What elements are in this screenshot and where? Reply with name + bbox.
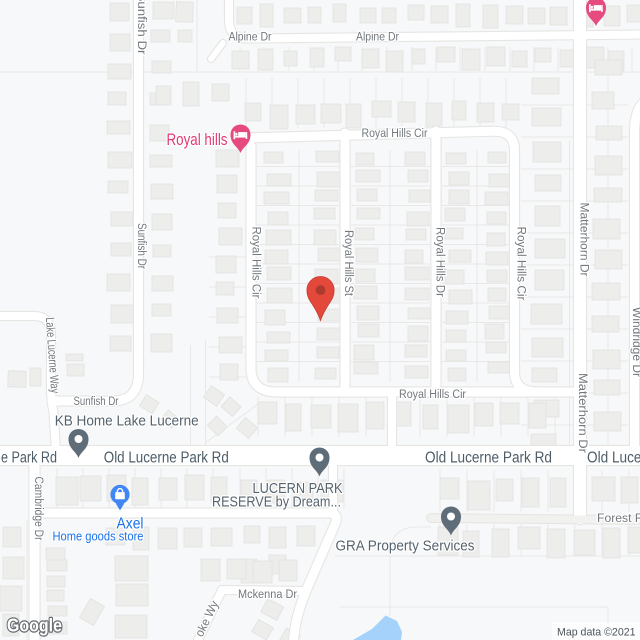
svg-text:Royal Hills St: Royal Hills St bbox=[342, 230, 356, 297]
svg-text:Royal Hills Dr: Royal Hills Dr bbox=[433, 227, 447, 297]
svg-text:Alpine Dr: Alpine Dr bbox=[356, 30, 399, 44]
svg-text:KB Home Lake Lucerne: KB Home Lake Lucerne bbox=[55, 413, 199, 430]
svg-text:Windridge Dr: Windridge Dr bbox=[630, 307, 640, 377]
svg-text:Royal Hills Cir: Royal Hills Cir bbox=[249, 227, 263, 299]
svg-text:Cambridge Dr: Cambridge Dr bbox=[32, 477, 46, 541]
svg-text:Old Lucerne Park Rd: Old Lucerne Park Rd bbox=[425, 450, 552, 467]
svg-text:Royal Hills Cir: Royal Hills Cir bbox=[362, 126, 428, 140]
svg-text:Mckenna Dr: Mckenna Dr bbox=[238, 587, 297, 601]
svg-text:Sunfish Dr: Sunfish Dr bbox=[135, 0, 149, 55]
svg-text:Royal Hills Cir: Royal Hills Cir bbox=[515, 227, 529, 301]
svg-text:Royal hills: Royal hills bbox=[167, 131, 228, 149]
svg-text:Royal Hills Cir: Royal Hills Cir bbox=[399, 387, 466, 401]
svg-text:Matterhorn Dr: Matterhorn Dr bbox=[576, 373, 590, 453]
svg-text:Old Lucerne Park Rd: Old Lucerne Park Rd bbox=[104, 450, 229, 467]
svg-text:Forest Ridge Dr: Forest Ridge Dr bbox=[597, 511, 640, 525]
svg-text:RESERVE by Dream...: RESERVE by Dream... bbox=[212, 494, 341, 511]
svg-text:Sunfish Dr: Sunfish Dr bbox=[74, 394, 119, 408]
svg-text:Home goods store: Home goods store bbox=[53, 528, 144, 543]
svg-text:Old Lucerne Park Rd: Old Lucerne Park Rd bbox=[587, 450, 640, 467]
svg-text:Map data ©2021: Map data ©2021 bbox=[557, 627, 636, 639]
svg-text:Matterhorn Dr: Matterhorn Dr bbox=[578, 203, 592, 277]
svg-text:e Park Rd: e Park Rd bbox=[1, 450, 57, 467]
svg-text:GRA Property Services: GRA Property Services bbox=[336, 538, 475, 555]
svg-text:Sunfish Dr: Sunfish Dr bbox=[135, 223, 149, 269]
svg-text:Alpine Dr: Alpine Dr bbox=[229, 30, 272, 44]
svg-text:Google: Google bbox=[7, 615, 62, 636]
